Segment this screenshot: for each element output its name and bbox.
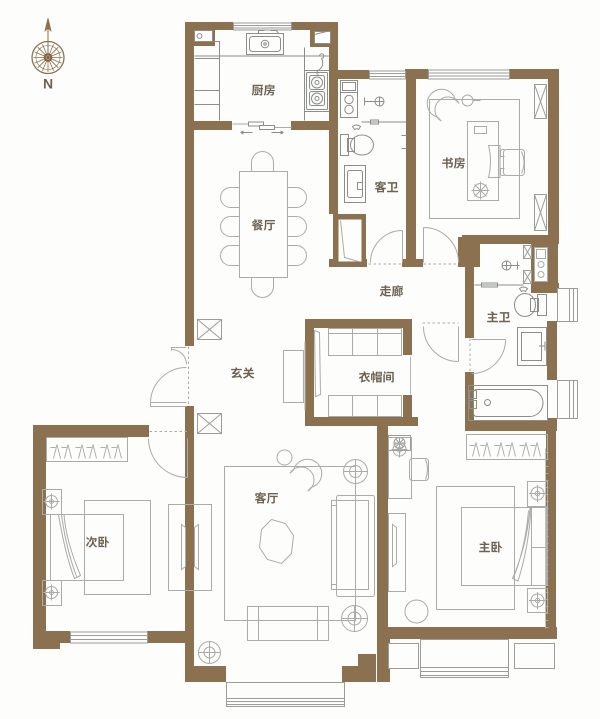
svg-text:N: N xyxy=(43,76,53,92)
